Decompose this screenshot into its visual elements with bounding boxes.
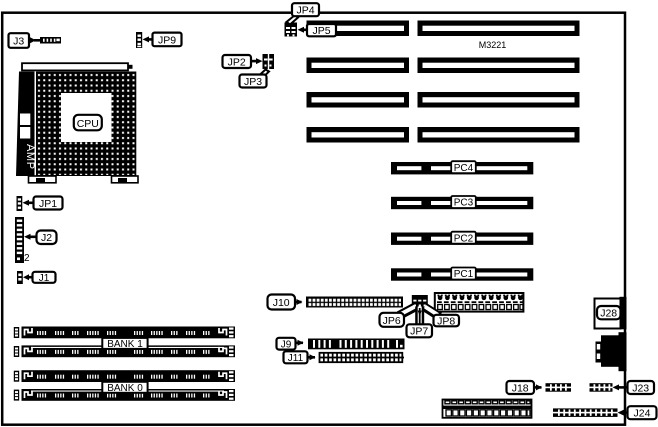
- svg-text:J1: J1: [39, 273, 50, 284]
- svg-text:JP5: JP5: [312, 25, 330, 37]
- svg-text:J9: J9: [281, 339, 292, 350]
- svg-text:M3221: M3221: [479, 40, 507, 50]
- svg-text:PC1: PC1: [454, 269, 474, 280]
- svg-text:J3: J3: [13, 36, 24, 48]
- svg-text:J11: J11: [288, 353, 304, 364]
- svg-text:J10: J10: [273, 297, 290, 309]
- svg-text:JP7: JP7: [410, 326, 428, 338]
- svg-text:PC4: PC4: [454, 163, 474, 174]
- svg-text:AMP: AMP: [24, 144, 36, 170]
- svg-text:JP4: JP4: [296, 5, 314, 17]
- svg-text:J28: J28: [600, 308, 617, 320]
- svg-text:JP1: JP1: [39, 198, 57, 210]
- svg-text:CPU: CPU: [77, 118, 99, 130]
- svg-text:J18: J18: [512, 382, 529, 394]
- svg-text:2: 2: [24, 253, 30, 264]
- svg-text:JP6: JP6: [383, 315, 401, 327]
- svg-text:JP9: JP9: [158, 34, 176, 46]
- svg-text:JP3: JP3: [244, 76, 262, 88]
- svg-text:J2: J2: [41, 232, 52, 244]
- svg-text:J24: J24: [634, 408, 651, 420]
- svg-text:J23: J23: [632, 382, 649, 394]
- svg-text:PC3: PC3: [454, 198, 474, 209]
- svg-text:PC2: PC2: [454, 233, 474, 244]
- svg-text:JP8: JP8: [437, 315, 455, 327]
- svg-text:BANK 1: BANK 1: [107, 339, 143, 350]
- svg-text:BANK 0: BANK 0: [107, 383, 143, 394]
- svg-text:JP2: JP2: [228, 56, 246, 68]
